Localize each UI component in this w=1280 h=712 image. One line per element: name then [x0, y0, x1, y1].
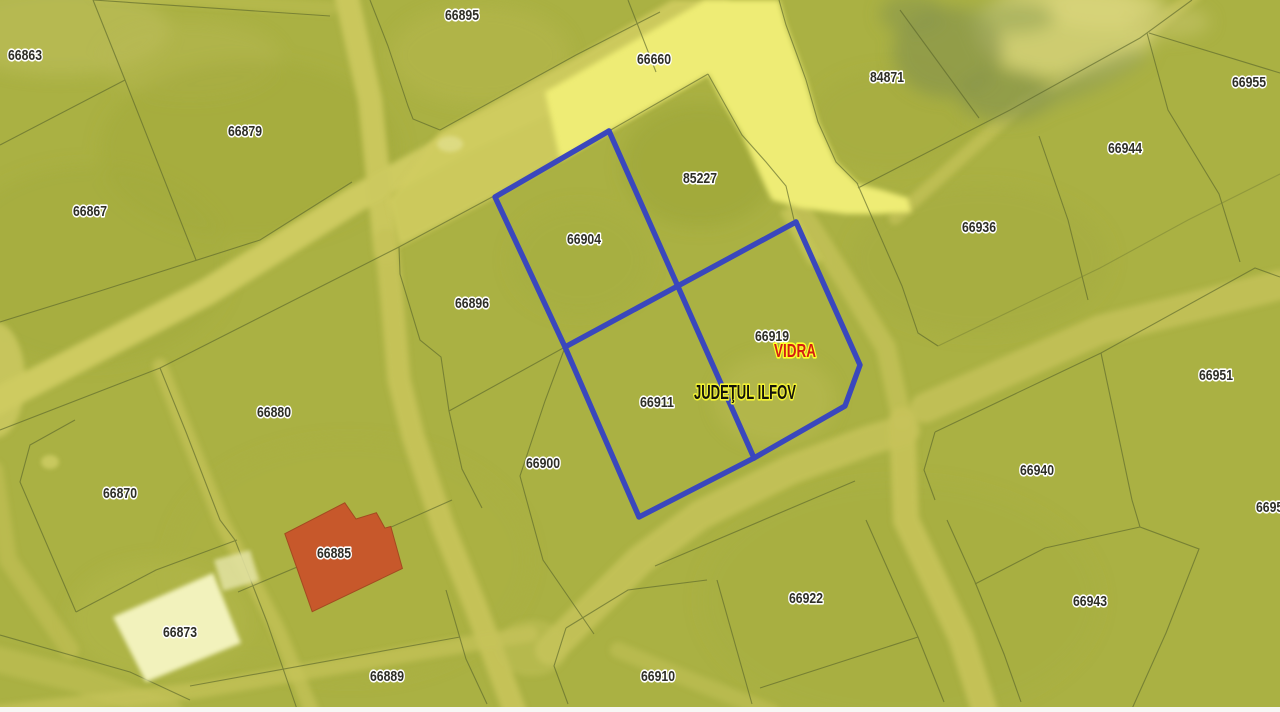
svg-text:66910: 66910: [641, 668, 675, 685]
svg-text:66896: 66896: [455, 295, 489, 312]
svg-text:JUDEŢUL ILFOV: JUDEŢUL ILFOV: [694, 382, 796, 404]
svg-text:66870: 66870: [103, 485, 137, 502]
svg-text:66922: 66922: [789, 590, 823, 607]
svg-text:66959: 66959: [1256, 499, 1280, 516]
svg-text:66944: 66944: [1108, 140, 1143, 157]
svg-text:66873: 66873: [163, 624, 197, 641]
svg-text:66940: 66940: [1020, 462, 1054, 479]
svg-text:66951: 66951: [1199, 367, 1233, 384]
svg-text:66911: 66911: [640, 394, 674, 411]
svg-text:66900: 66900: [526, 455, 560, 472]
svg-text:66863: 66863: [8, 47, 42, 64]
svg-text:66943: 66943: [1073, 593, 1107, 610]
svg-text:66867: 66867: [73, 203, 107, 220]
svg-text:66904: 66904: [567, 231, 602, 248]
svg-text:66660: 66660: [637, 51, 671, 68]
svg-text:VIDRA: VIDRA: [774, 341, 816, 361]
svg-text:66880: 66880: [257, 404, 291, 421]
svg-text:66936: 66936: [962, 219, 996, 236]
svg-text:66955: 66955: [1232, 74, 1266, 91]
svg-text:66885: 66885: [317, 545, 351, 562]
svg-text:66895: 66895: [445, 7, 479, 24]
svg-text:66889: 66889: [370, 668, 404, 685]
svg-text:66879: 66879: [228, 123, 262, 140]
svg-text:84871: 84871: [870, 69, 904, 86]
svg-text:85227: 85227: [683, 170, 717, 187]
